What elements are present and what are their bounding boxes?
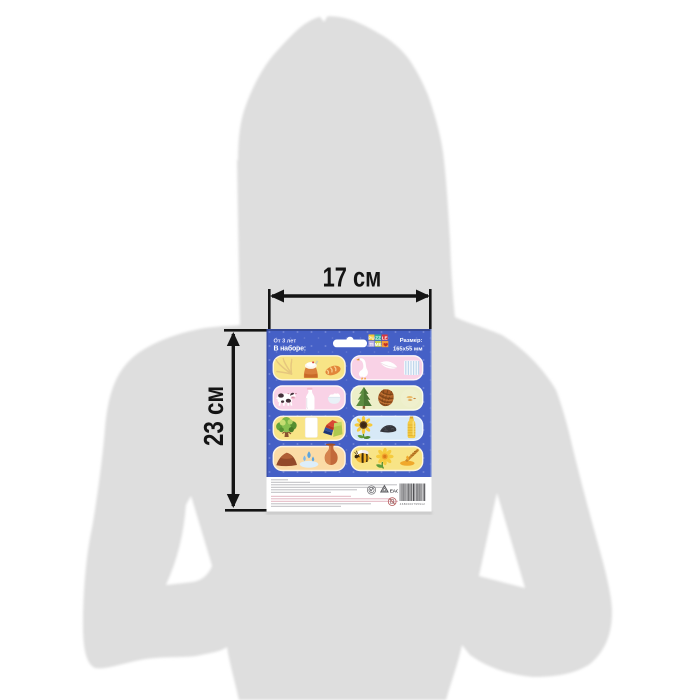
svg-text:Размер:: Размер: <box>400 338 423 344</box>
svg-text:LE: LE <box>382 335 388 340</box>
svg-text:ME: ME <box>375 342 382 347</box>
svg-text:23 см: 23 см <box>199 386 230 446</box>
svg-text:17 см: 17 см <box>323 263 382 293</box>
svg-text:4680000795912: 4680000795912 <box>400 502 425 506</box>
svg-text:От 3 лет: От 3 лет <box>274 338 297 344</box>
svg-text:В наборе:: В наборе: <box>274 344 306 352</box>
svg-text:ZZ: ZZ <box>375 335 381 340</box>
svg-text:TI: TI <box>369 342 373 347</box>
svg-text:165х55 мм: 165х55 мм <box>393 347 423 353</box>
